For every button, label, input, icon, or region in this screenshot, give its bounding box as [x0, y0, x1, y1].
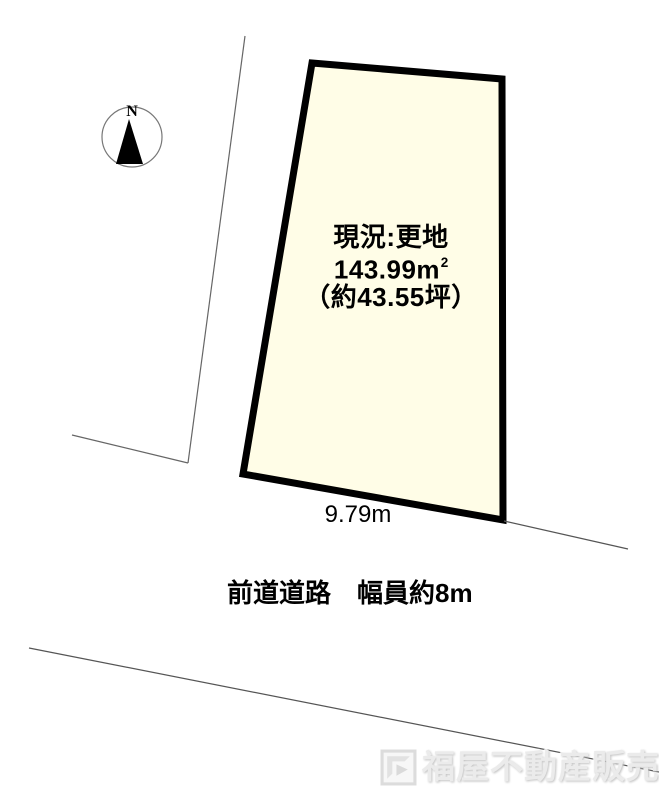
parcel-area-tsubo: （約43.55坪）	[263, 284, 519, 311]
road-label: 前道道路 幅員約8m	[227, 573, 473, 610]
site-plan: N 現況:更地 143.99m2 （約43.55坪） 9.79m 前道道路 幅員…	[0, 0, 659, 800]
fukuya-logo-icon	[380, 749, 417, 786]
parcel-status: 現況:更地	[263, 224, 519, 251]
watermark-text: 福屋不動産販売	[422, 748, 659, 786]
road-near-edge-line	[504, 521, 628, 549]
boundary-line-left	[188, 36, 245, 463]
parcel-area: 143.99m2	[263, 251, 519, 284]
parcel-area-value: 143.99m	[334, 255, 440, 285]
watermark: 福屋不動産販売	[380, 748, 659, 786]
parcel-area-superscript: 2	[441, 255, 449, 270]
boundary-line-lower-left	[72, 435, 188, 463]
compass-north-label: N	[120, 103, 144, 121]
frontage-dimension-label: 9.79m	[315, 501, 401, 529]
parcel-info: 現況:更地 143.99m2 （約43.55坪）	[263, 224, 519, 311]
site-plan-drawing	[0, 0, 659, 800]
